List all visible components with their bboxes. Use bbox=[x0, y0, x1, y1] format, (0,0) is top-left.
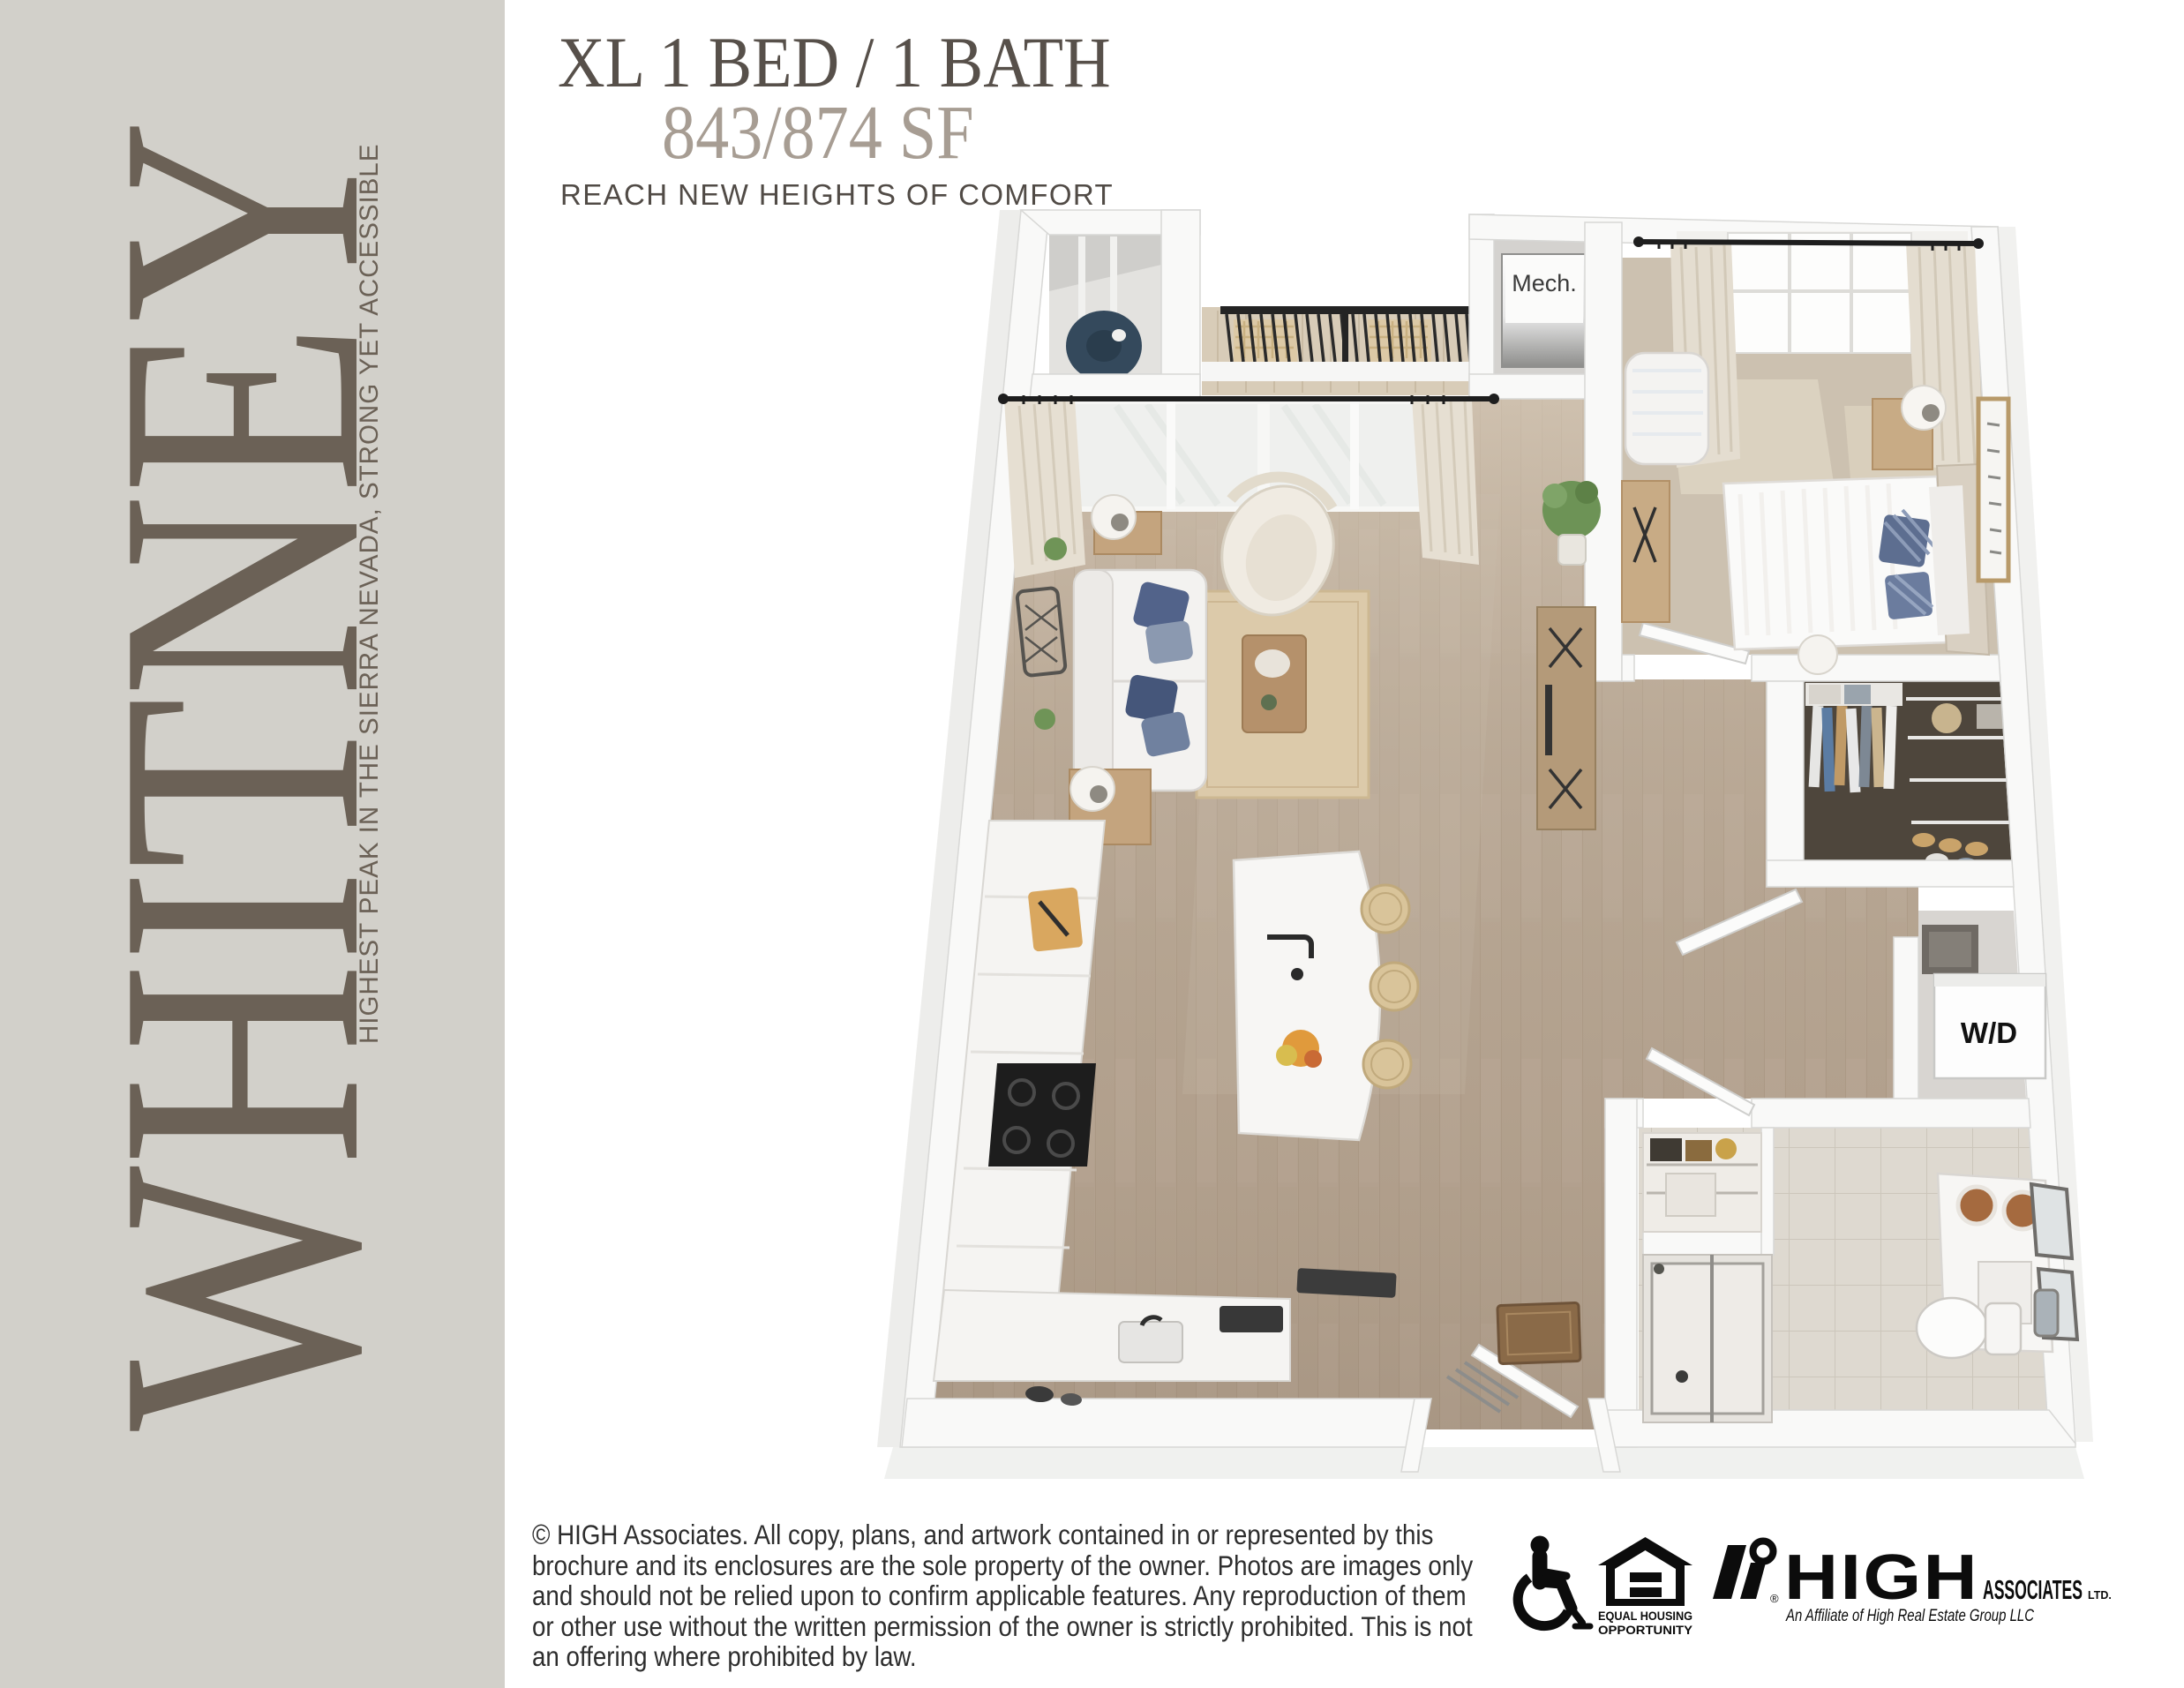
svg-text:®: ® bbox=[1770, 1592, 1779, 1605]
svg-text:OPPORTUNITY: OPPORTUNITY bbox=[1598, 1624, 1692, 1637]
svg-text:HIGH: HIGH bbox=[1784, 1542, 1979, 1613]
svg-text:ASSOCIATES: ASSOCIATES bbox=[1983, 1574, 2083, 1605]
svg-text:W/D: W/D bbox=[1961, 1017, 2017, 1049]
svg-text:LTD.: LTD. bbox=[2088, 1589, 2112, 1602]
svg-text:Mech.: Mech. bbox=[1512, 270, 1577, 296]
svg-text:EQUAL HOUSING: EQUAL HOUSING bbox=[1598, 1609, 1692, 1623]
svg-text:An Affiliate of High Real Esta: An Affiliate of High Real Estate Group L… bbox=[1785, 1606, 2034, 1625]
